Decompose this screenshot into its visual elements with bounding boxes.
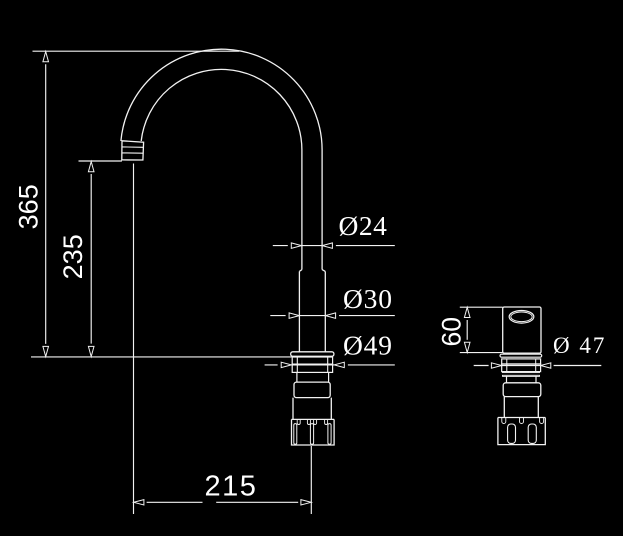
svg-text:Ø30: Ø30 — [343, 283, 393, 314]
svg-text:Ø49: Ø49 — [343, 330, 393, 361]
svg-text:365: 365 — [14, 184, 44, 229]
svg-text:215: 215 — [205, 471, 258, 503]
svg-text:235: 235 — [58, 234, 88, 279]
svg-text:60: 60 — [437, 317, 467, 346]
svg-text:Ø 47: Ø 47 — [553, 333, 606, 358]
svg-text:Ø24: Ø24 — [339, 210, 388, 241]
